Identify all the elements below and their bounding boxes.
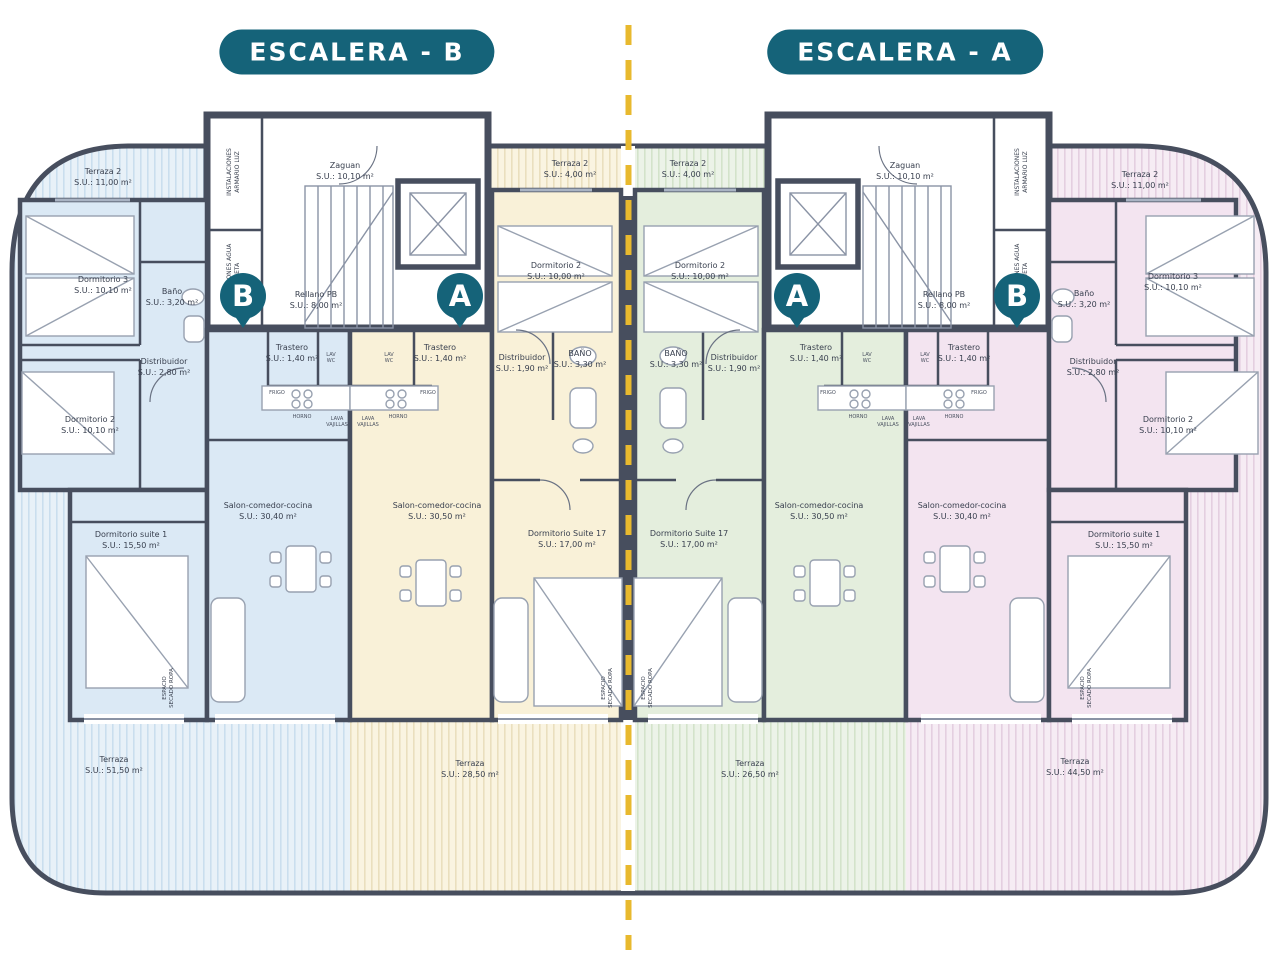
room-label-rellano-right: Rellano PB S.U.: 8,00 m² bbox=[918, 290, 971, 312]
room-label-bano-green: BAÑOS.U.: 3,30 m² bbox=[650, 349, 703, 371]
room-label-terraza2-pink: Terraza 2S.U.: 11,00 m² bbox=[1111, 170, 1169, 192]
room-label-trastero-pink: TrasteroS.U.: 1,40 m² bbox=[938, 343, 991, 365]
room-name: Rellano PB bbox=[290, 290, 343, 301]
secado-ropa-label-blue: ESPACIO SECADO ROPA bbox=[162, 665, 176, 711]
escalera-b-badge: ESCALERA - B bbox=[219, 30, 494, 75]
lava-vajillas-label-green: LAVA VAJILLAS bbox=[871, 416, 905, 429]
room-label-bano-blue: BañoS.U.: 3,20 m² bbox=[146, 287, 199, 309]
room-label-terraza-blue: TerrazaS.U.: 51,50 m² bbox=[85, 755, 143, 777]
room-label-salon-yellow: Salon-comedor-cocinaS.U.: 30,50 m² bbox=[393, 501, 482, 523]
horno-label-blue: HORNO bbox=[293, 414, 312, 420]
room-label-distribuidor-yellow: DistribuidorS.U.: 1,90 m² bbox=[496, 353, 549, 375]
elevator-left bbox=[398, 181, 478, 267]
frigo-label-blue: FRIGO bbox=[269, 390, 285, 396]
secado-ropa-label-yellow: ESPACIO SECADO ROPA bbox=[601, 665, 615, 711]
room-label-zaguan-right: Zaguan S.U.: 10,10 m² bbox=[876, 161, 934, 183]
room-label-distribuidor-green: DistribuidorS.U.: 1,90 m² bbox=[708, 353, 761, 375]
secado-ropa-label-green: ESPACIO SECADO ROPA bbox=[641, 665, 655, 711]
escalera-a-badge: ESCALERA - A bbox=[767, 30, 1043, 75]
room-name: Rellano PB bbox=[918, 290, 971, 301]
room-label-terraza-green: TerrazaS.U.: 26,50 m² bbox=[721, 759, 779, 781]
room-label-rellano-left: Rellano PB S.U.: 8,00 m² bbox=[290, 290, 343, 312]
unit-pin-a-left: A bbox=[437, 273, 483, 319]
room-label-terraza-yellow: TerrazaS.U.: 28,50 m² bbox=[441, 759, 499, 781]
room-area: S.U.: 10,10 m² bbox=[316, 172, 374, 183]
room-name: Zaguan bbox=[876, 161, 934, 172]
room-label-dormitorio3-blue: Dormitorio 3S.U.: 10,10 m² bbox=[74, 275, 132, 297]
closet-label-luz-left: INSTALACIONES ARMARIO LUZ bbox=[226, 136, 242, 208]
room-label-suite-blue: Dormitorio suite 1S.U.: 15,50 m² bbox=[95, 530, 167, 552]
room-area: S.U.: 10,10 m² bbox=[876, 172, 934, 183]
room-label-suite-pink: Dormitorio suite 1S.U.: 15,50 m² bbox=[1088, 530, 1160, 552]
room-label-terraza2-green: Terraza 2S.U.: 4,00 m² bbox=[662, 159, 715, 181]
floorplan-canvas: ESCALERA - B ESCALERA - A B A A B Zaguan… bbox=[0, 0, 1280, 960]
horno-label-pink: HORNO bbox=[945, 414, 964, 420]
horno-label-yellow: HORNO bbox=[389, 414, 408, 420]
lava-vajillas-label-yellow: LAVA VAJILLAS bbox=[351, 416, 385, 429]
secado-ropa-label-pink: ESPACIO SECADO ROPA bbox=[1080, 665, 1094, 711]
room-label-dormitorio2-blue: Dormitorio 2S.U.: 10,10 m² bbox=[61, 415, 119, 437]
room-label-dormitorio3-pink: Dormitorio 3S.U.: 10,10 m² bbox=[1144, 272, 1202, 294]
room-area: S.U.: 8,00 m² bbox=[290, 301, 343, 312]
room-label-salon-green: Salon-comedor-cocinaS.U.: 30,50 m² bbox=[775, 501, 864, 523]
closet-label-luz-right: INSTALACIONES ARMARIO LUZ bbox=[1014, 136, 1030, 208]
room-label-bano-yellow: BAÑOS.U.: 3,30 m² bbox=[554, 349, 607, 371]
room-label-trastero-yellow: TrasteroS.U.: 1,40 m² bbox=[414, 343, 467, 365]
floorplan-linework bbox=[0, 0, 1280, 960]
room-label-terraza2-yellow: Terraza 2S.U.: 4,00 m² bbox=[544, 159, 597, 181]
lav-wc-label-blue: LAVWC bbox=[326, 352, 335, 365]
room-label-terraza-pink: TerrazaS.U.: 44,50 m² bbox=[1046, 757, 1104, 779]
room-name: Zaguan bbox=[316, 161, 374, 172]
room-label-suite-yellow: Dormitorio Suite 17S.U.: 17,00 m² bbox=[528, 529, 606, 551]
unit-pin-b-left: B bbox=[220, 273, 266, 319]
unit-pin-a-right: A bbox=[774, 273, 820, 319]
frigo-label-green: FRIGO bbox=[820, 390, 836, 396]
lav-wc-label-green: LAVWC bbox=[862, 352, 871, 365]
room-label-salon-pink: Salon-comedor-cocinaS.U.: 30,40 m² bbox=[918, 501, 1007, 523]
unit-pin-b-right: B bbox=[994, 273, 1040, 319]
room-label-suite-green: Dormitorio Suite 17S.U.: 17,00 m² bbox=[650, 529, 728, 551]
room-label-distribuidor-blue: DistribuidorS.U.: 2,80 m² bbox=[138, 357, 191, 379]
lav-wc-label-pink: LAVWC bbox=[920, 352, 929, 365]
lava-vajillas-label-blue: LAVA VAJILLAS bbox=[320, 416, 354, 429]
room-label-trastero-blue: TrasteroS.U.: 1,40 m² bbox=[266, 343, 319, 365]
frigo-label-yellow: FRIGO bbox=[420, 390, 436, 396]
room-label-zaguan-left: Zaguan S.U.: 10,10 m² bbox=[316, 161, 374, 183]
room-area: S.U.: 8,00 m² bbox=[918, 301, 971, 312]
room-label-bano-pink: BañoS.U.: 3,20 m² bbox=[1058, 289, 1111, 311]
room-label-dormitorio2-pink: Dormitorio 2S.U.: 10,10 m² bbox=[1139, 415, 1197, 437]
elevator-right bbox=[778, 181, 858, 267]
room-label-salon-blue: Salon-comedor-cocinaS.U.: 30,40 m² bbox=[224, 501, 313, 523]
room-label-trastero-green: TrasteroS.U.: 1,40 m² bbox=[790, 343, 843, 365]
horno-label-green: HORNO bbox=[849, 414, 868, 420]
room-label-terraza2-blue: Terraza 2S.U.: 11,00 m² bbox=[74, 167, 132, 189]
lava-vajillas-label-pink: LAVA VAJILLAS bbox=[902, 416, 936, 429]
frigo-label-pink: FRIGO bbox=[971, 390, 987, 396]
room-label-dormitorio2-green: Dormitorio 2S.U.: 10,00 m² bbox=[671, 261, 729, 283]
lav-wc-label-yellow: LAVWC bbox=[384, 352, 393, 365]
room-label-dormitorio2-yellow: Dormitorio 2S.U.: 10,00 m² bbox=[527, 261, 585, 283]
room-label-distribuidor-pink: DistribuidorS.U.: 2,80 m² bbox=[1067, 357, 1120, 379]
